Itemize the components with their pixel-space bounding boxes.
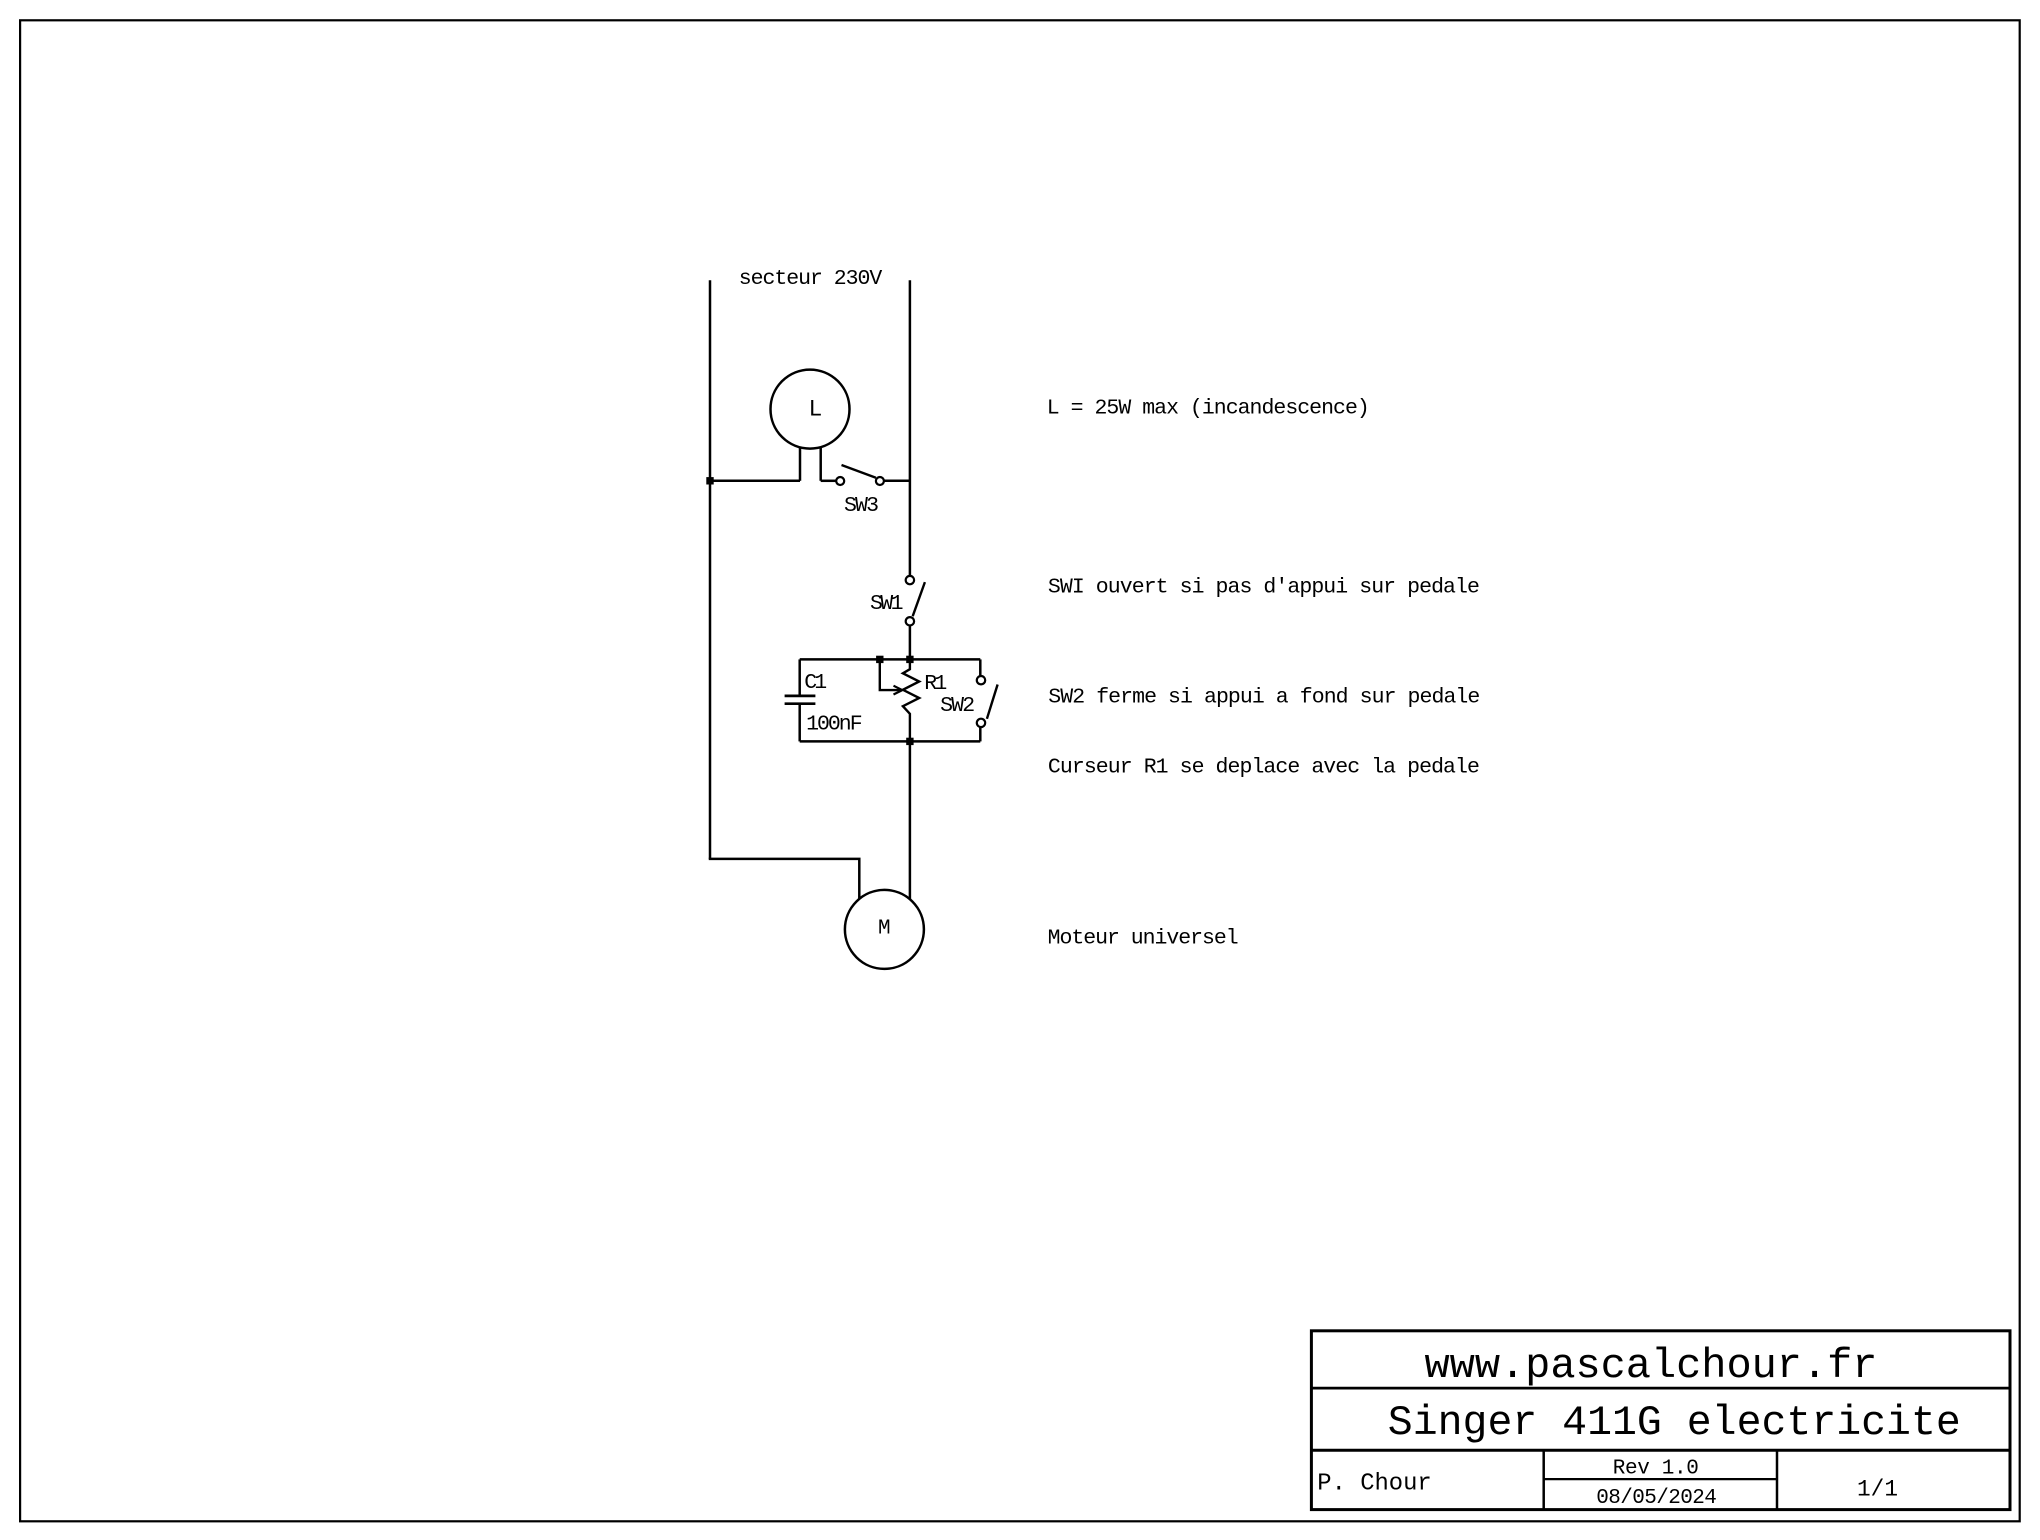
svg-text:1/1: 1/1 [1857, 1477, 1898, 1503]
svg-text:100nF: 100nF [806, 712, 863, 736]
svg-text:SW1: SW1 [870, 592, 904, 616]
svg-text:SW3: SW3 [844, 494, 879, 518]
svg-text:www.pascalchour.fr: www.pascalchour.fr [1425, 1342, 1878, 1390]
svg-text:Rev 1.0: Rev 1.0 [1613, 1458, 1699, 1481]
svg-text:08/05/2024: 08/05/2024 [1596, 1487, 1717, 1510]
svg-text:Moteur universel: Moteur universel [1048, 927, 1239, 951]
svg-text:M: M [878, 918, 891, 941]
svg-text:R1: R1 [924, 672, 947, 696]
svg-text:L: L [808, 397, 822, 423]
svg-text:L = 25W max (incandescence): L = 25W max (incandescence) [1047, 397, 1370, 421]
svg-text:SWI ouvert si pas d'appui sur: SWI ouvert si pas d'appui sur pedale [1048, 576, 1480, 600]
svg-text:C1: C1 [804, 671, 827, 695]
svg-text:P. Chour: P. Chour [1317, 1471, 1431, 1498]
svg-text:SW2 ferme si appui a fond sur: SW2 ferme si appui a fond sur pedale [1048, 686, 1480, 710]
svg-text:Curseur R1 se deplace avec la: Curseur R1 se deplace avec la pedale [1048, 755, 1480, 779]
svg-text:Singer 411G electricite: Singer 411G electricite [1388, 1400, 1961, 1447]
svg-text:SW2: SW2 [940, 694, 975, 718]
svg-text:secteur 230V: secteur 230V [739, 267, 883, 291]
